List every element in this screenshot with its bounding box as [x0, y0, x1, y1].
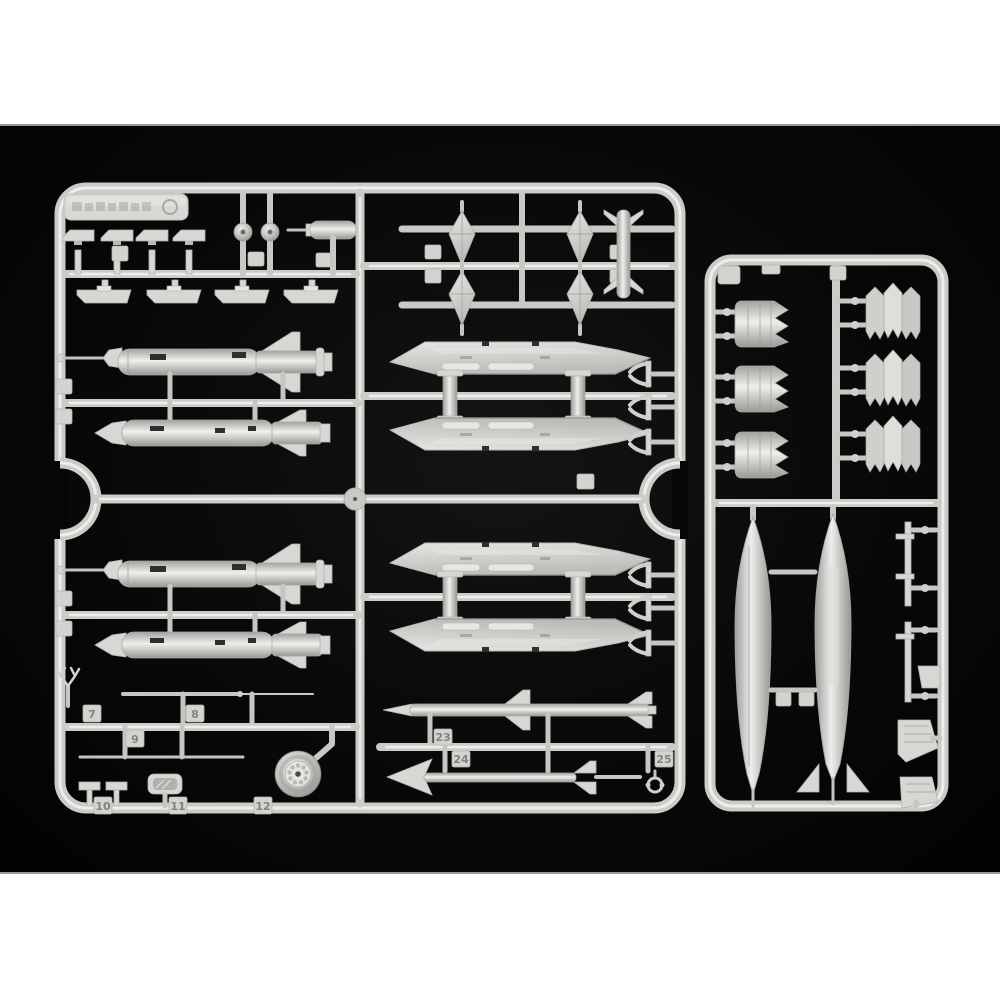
- part-number-tag-10: 10: [94, 797, 112, 814]
- exhaust-shroud-parts: [715, 301, 788, 478]
- bomb-set-lower: [56, 544, 358, 668]
- main-wheel-part: [275, 727, 332, 797]
- sprue-edge-notch-left: [52, 461, 96, 539]
- part-number-tag-7: 7: [83, 705, 101, 722]
- page: { "image": { "type": "product photo", "s…: [0, 0, 1000, 1000]
- boat-pylon-part: [147, 280, 201, 303]
- quadrant-top-middle: [364, 193, 674, 334]
- launch-rail-parts: [896, 522, 940, 702]
- boat-pylon-part: [215, 280, 269, 303]
- main-sprue: 7 8 9 10 11 12: [52, 188, 688, 814]
- svg-text:10: 10: [95, 800, 111, 813]
- blank-tag: [762, 265, 780, 274]
- bomb-set-upper: [56, 332, 358, 456]
- svg-text:7: 7: [88, 708, 96, 721]
- svg-text:23: 23: [435, 731, 450, 744]
- drop-tank-half-left: [735, 507, 771, 806]
- missile-part: [383, 690, 656, 747]
- right-sprue: [710, 260, 943, 808]
- small-wheel-part: [234, 223, 252, 241]
- diamond-fin-part: [449, 262, 475, 334]
- blank-tag: [248, 252, 264, 266]
- blank-tag: [776, 692, 791, 706]
- part-number-tag-8: 8: [186, 705, 204, 722]
- ring-part: [646, 771, 665, 792]
- svg-text:11: 11: [170, 800, 185, 813]
- quadrant-bottom-left: 7 8 9 10 11 12: [57, 668, 356, 814]
- rocket-part: [387, 759, 640, 795]
- part-number-tag-25: 25: [655, 751, 673, 767]
- tank-connector-runners: [771, 572, 815, 690]
- blank-tag: [425, 269, 441, 283]
- drop-tank-half-right: [797, 507, 869, 804]
- sprue-photo-illustration: 7 8 9 10 11 12: [0, 126, 1000, 872]
- rod-part: [80, 727, 243, 757]
- blank-tag: [316, 253, 331, 267]
- sprue-edge-notch-right: [644, 461, 688, 539]
- blank-tag: [799, 692, 814, 706]
- panel-section-lower: [364, 542, 674, 656]
- part-number-tag-9: 9: [126, 730, 144, 747]
- blank-tag: [425, 245, 441, 259]
- fin-parts: [898, 720, 940, 808]
- small-pylon-part: [62, 230, 94, 274]
- svg-text:8: 8: [191, 708, 199, 721]
- nozzle-petal-parts: [840, 283, 920, 472]
- photo-background: 7 8 9 10 11 12: [0, 124, 1000, 874]
- pitot-tube-part: [123, 691, 313, 727]
- quadrant-bottom-middle: 23 24 25: [380, 690, 673, 795]
- small-wheel-part: [261, 223, 279, 241]
- part-number-tag-23: 23: [434, 729, 452, 745]
- diamond-fin-part: [567, 262, 593, 334]
- svg-text:9: 9: [131, 733, 139, 746]
- svg-text:12: 12: [255, 800, 270, 813]
- brand-plate: [64, 194, 188, 220]
- blank-tag: [577, 474, 594, 489]
- svg-text:24: 24: [453, 753, 469, 766]
- small-pylon-part: [136, 230, 168, 274]
- blank-tag: [112, 246, 128, 261]
- blank-tag: [718, 266, 740, 284]
- boat-pylon-part: [77, 280, 131, 303]
- part-number-tag-11: 11: [169, 797, 187, 814]
- svg-text:25: 25: [656, 753, 671, 766]
- boat-pylon-part: [284, 280, 338, 303]
- small-pylon-part: [173, 230, 205, 274]
- part-number-tag-12: 12: [254, 797, 272, 814]
- part-number-tag-24: 24: [452, 751, 470, 767]
- blank-tag: [830, 266, 846, 280]
- panel-section-upper: [364, 341, 674, 455]
